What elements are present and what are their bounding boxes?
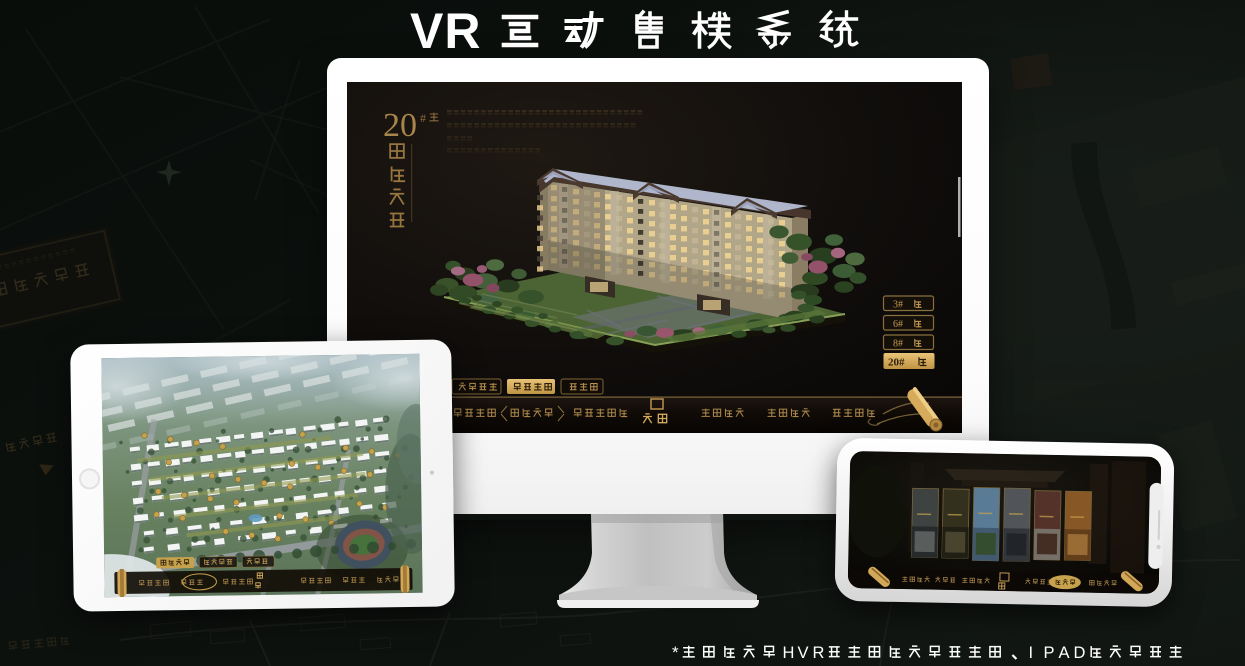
svg-text:I: I xyxy=(1029,644,1034,662)
svg-text:V: V xyxy=(798,644,809,662)
svg-text:D: D xyxy=(1074,644,1086,662)
svg-text:R: R xyxy=(813,644,825,662)
svg-text:H: H xyxy=(783,644,795,662)
svg-text:P: P xyxy=(1044,644,1055,662)
svg-text:3#: 3# xyxy=(893,300,903,311)
svg-text:VR: VR xyxy=(410,4,481,56)
svg-text:6#: 6# xyxy=(893,319,903,330)
svg-text:#: # xyxy=(420,111,426,125)
svg-text:20: 20 xyxy=(383,107,417,144)
svg-text:20#: 20# xyxy=(888,357,905,369)
svg-text:*: * xyxy=(672,643,679,662)
svg-text:8#: 8# xyxy=(893,339,903,350)
svg-text:A: A xyxy=(1059,644,1070,662)
